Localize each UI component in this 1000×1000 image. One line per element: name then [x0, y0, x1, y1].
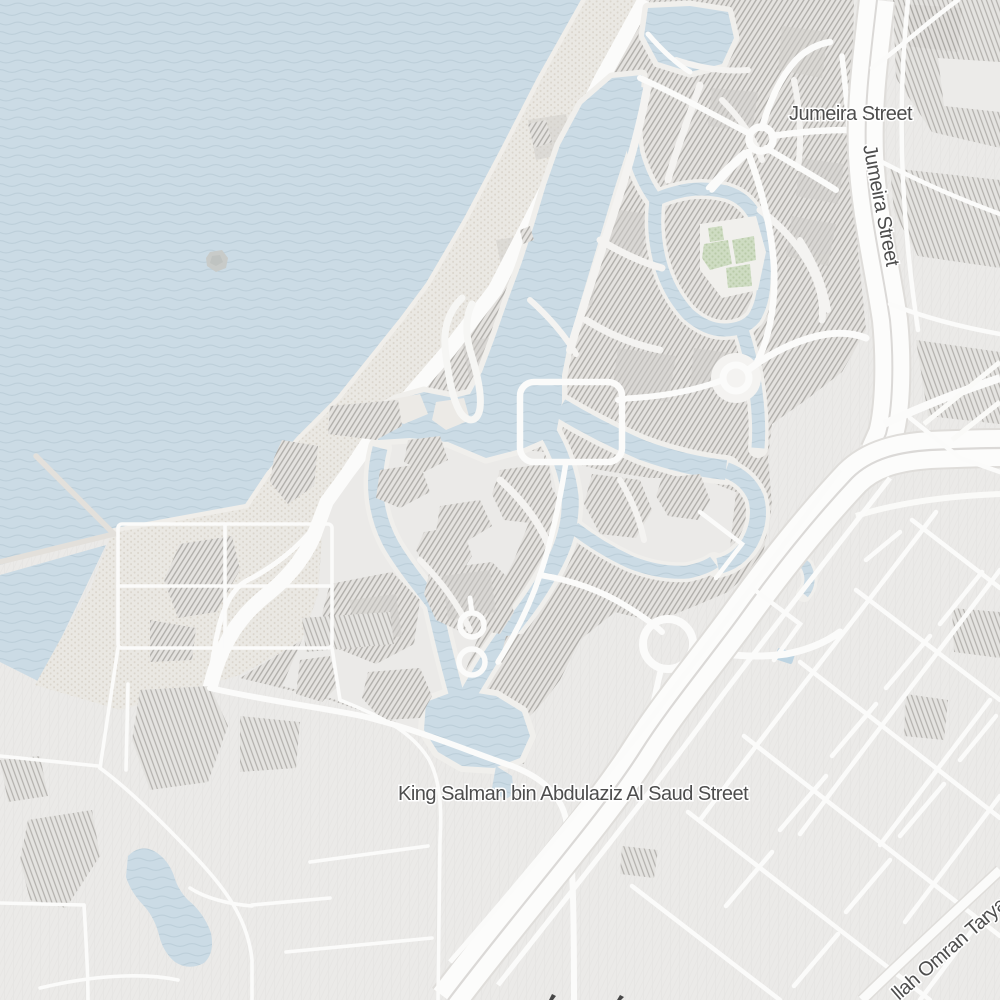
- svg-text:Jumeira Street: Jumeira Street: [789, 103, 913, 125]
- svg-text:King Salman bin Abdulaziz Al S: King Salman bin Abdulaziz Al Saud Street: [398, 783, 749, 805]
